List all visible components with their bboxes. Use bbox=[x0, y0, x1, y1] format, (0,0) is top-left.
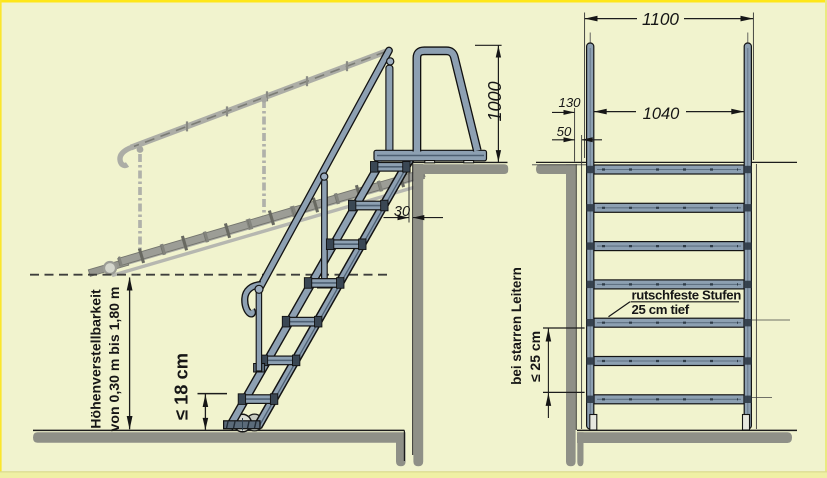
svg-text:1040: 1040 bbox=[643, 105, 681, 123]
svg-text:bei starren Leitern: bei starren Leitern bbox=[509, 267, 524, 385]
svg-text:≤ 18 cm: ≤ 18 cm bbox=[171, 353, 192, 420]
svg-text:50: 50 bbox=[557, 124, 572, 139]
svg-text:130: 130 bbox=[558, 95, 581, 110]
svg-text:≤ 25 cm: ≤ 25 cm bbox=[527, 331, 543, 382]
svg-text:1100: 1100 bbox=[642, 9, 679, 29]
svg-text:30: 30 bbox=[394, 204, 410, 220]
svg-text:1000: 1000 bbox=[485, 81, 505, 121]
svg-text:rutschfeste Stufen: rutschfeste Stufen bbox=[632, 287, 742, 302]
svg-text:25 cm tief: 25 cm tief bbox=[632, 302, 690, 317]
